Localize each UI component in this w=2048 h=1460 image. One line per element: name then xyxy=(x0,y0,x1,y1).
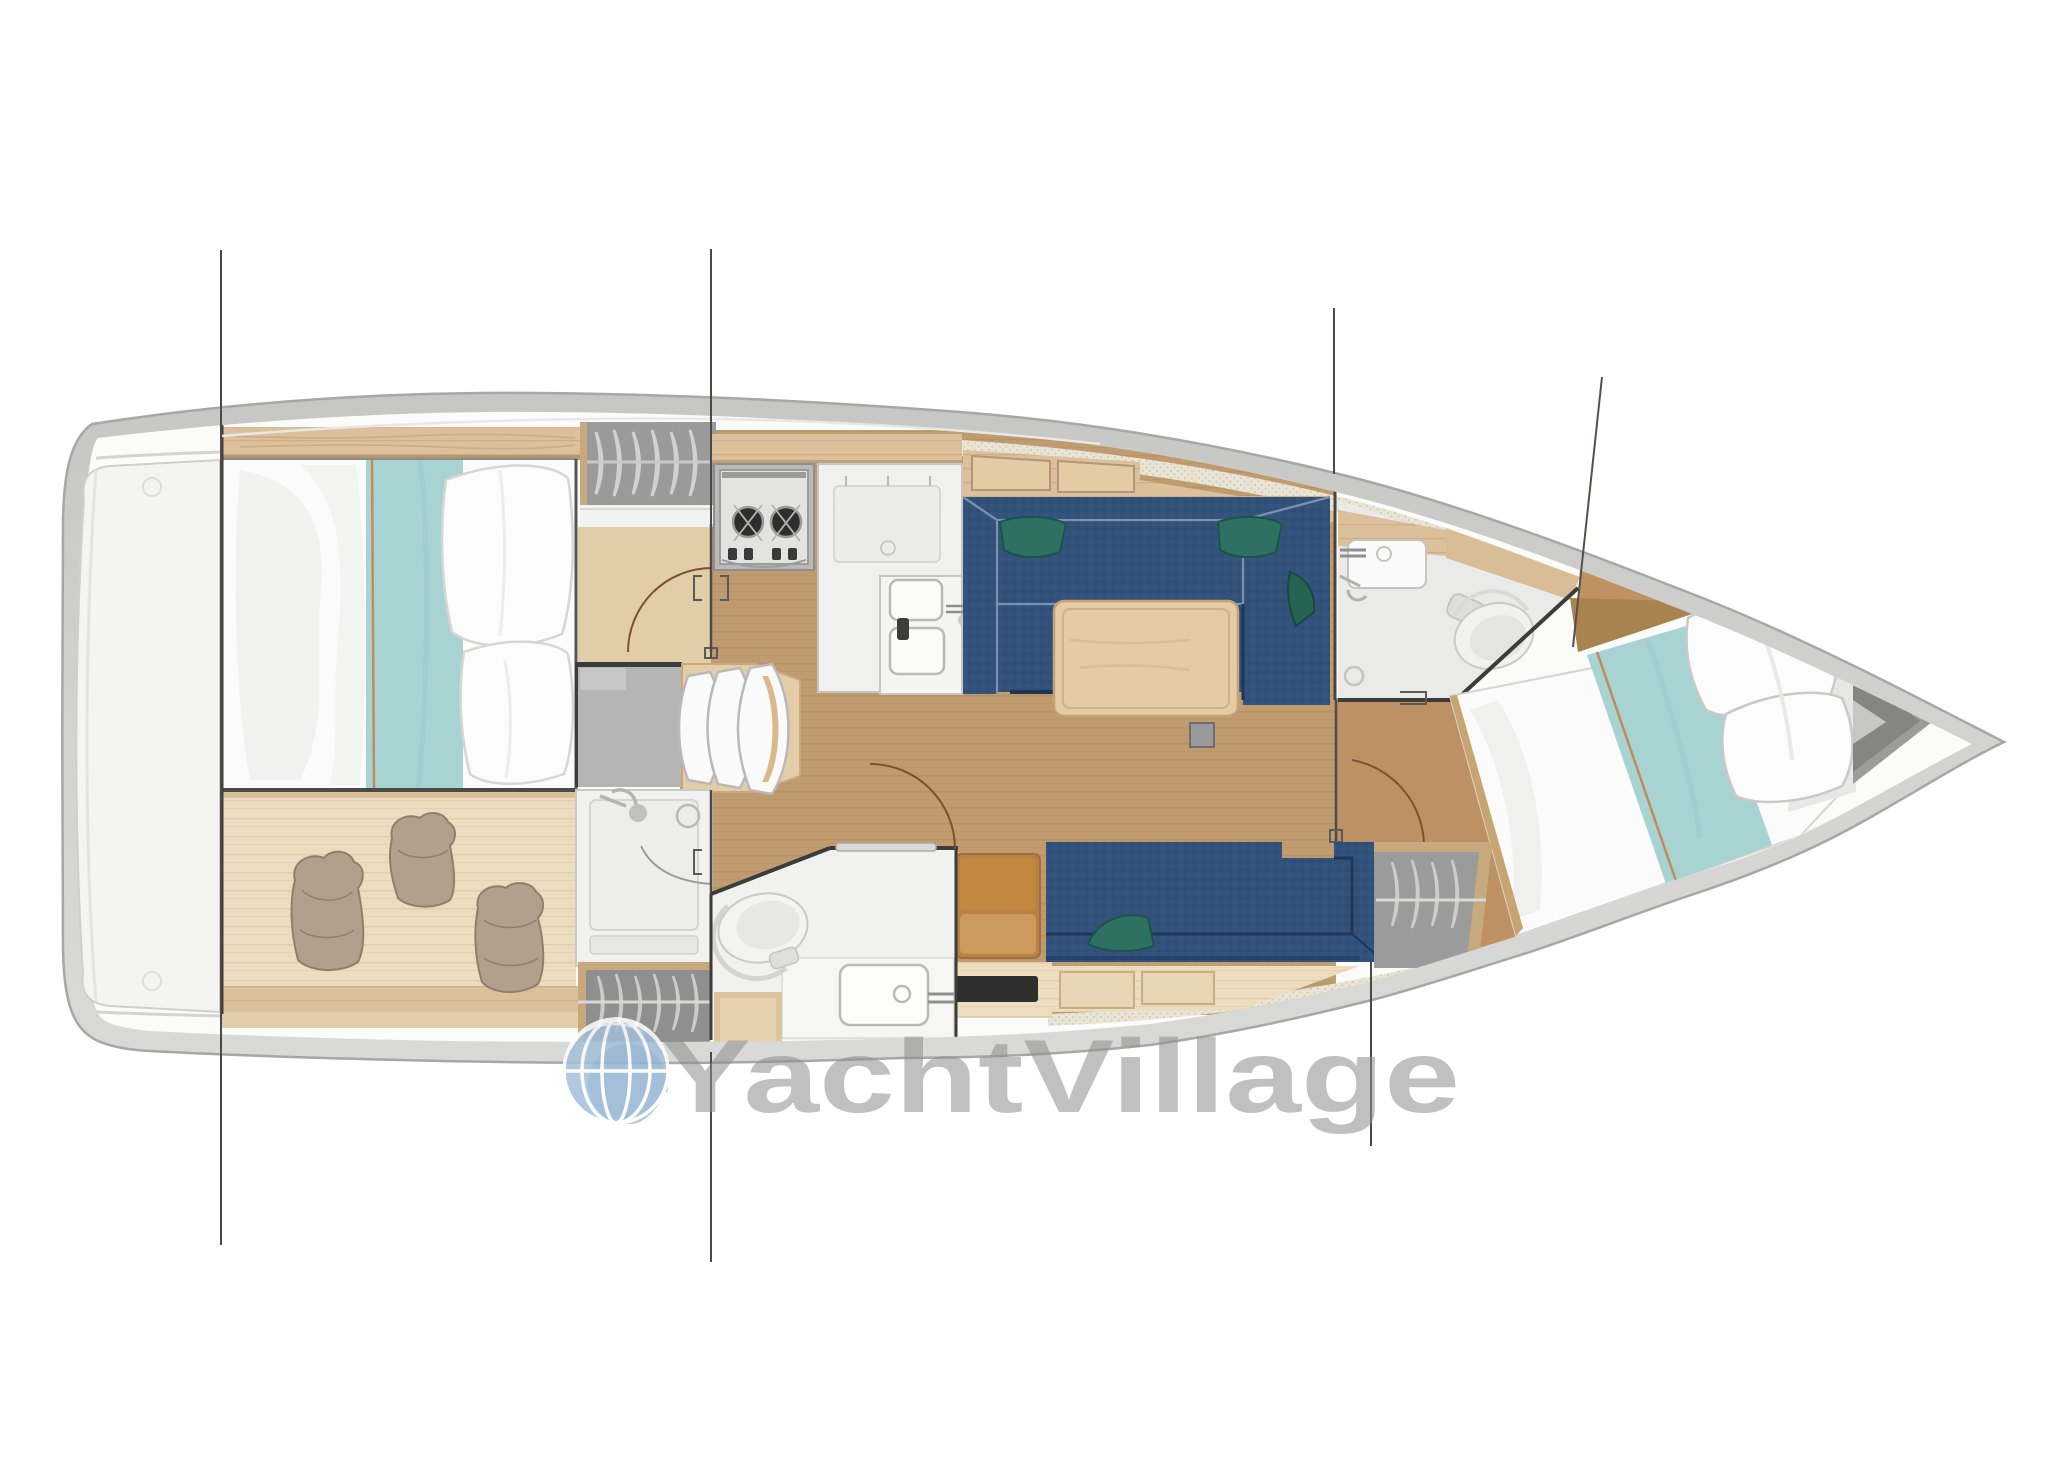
svg-text:YachtVillage: YachtVillage xyxy=(660,1019,1460,1135)
